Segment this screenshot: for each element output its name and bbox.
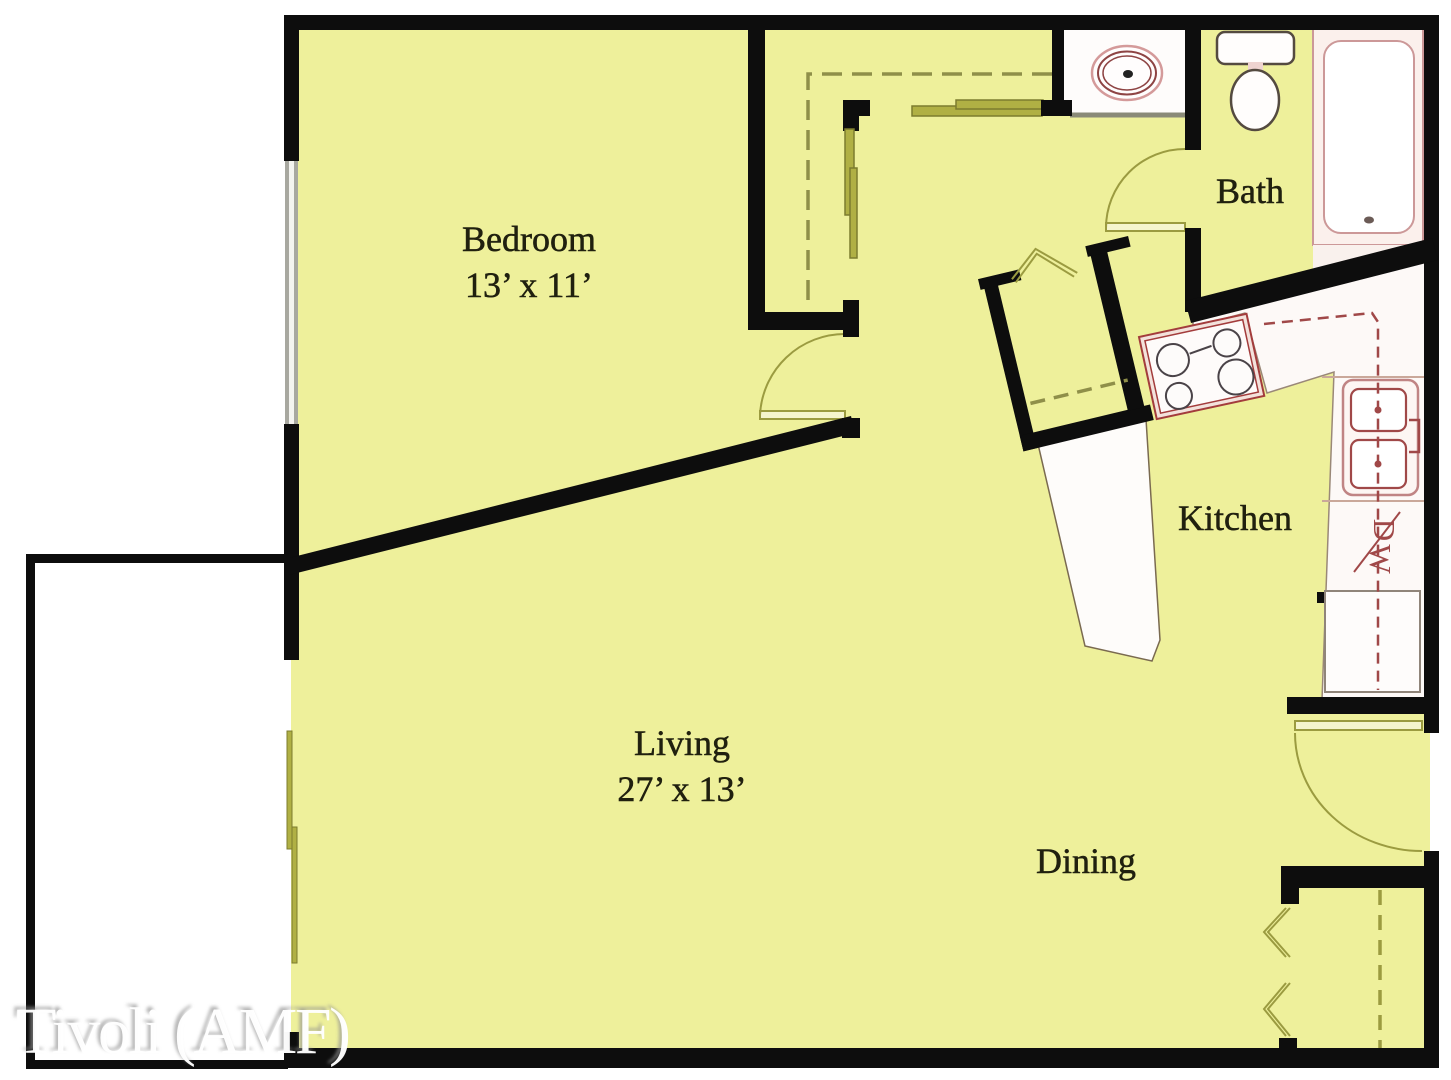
svg-text:13’ x 11’: 13’ x 11’ [465, 265, 593, 305]
svg-text:D: D [1367, 519, 1402, 541]
svg-text:W: W [1363, 544, 1398, 574]
svg-text:Bath: Bath [1216, 171, 1284, 211]
svg-text:Dining: Dining [1036, 841, 1136, 881]
svg-text:Tivoli (AMF): Tivoli (AMF) [16, 995, 349, 1068]
svg-text:Kitchen: Kitchen [1178, 498, 1292, 538]
svg-text:27’ x 13’: 27’ x 13’ [617, 769, 746, 809]
svg-text:Living: Living [634, 723, 730, 763]
svg-text:Bedroom: Bedroom [462, 219, 596, 259]
